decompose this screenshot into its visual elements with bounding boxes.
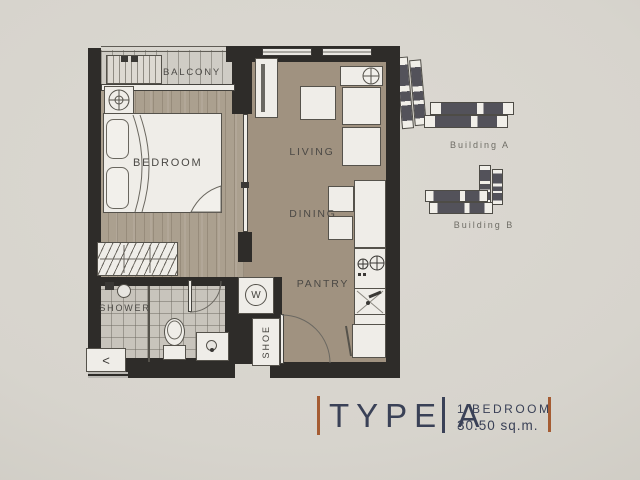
dining-table xyxy=(354,180,386,248)
building-a-wing xyxy=(424,115,508,128)
accent-bar-right xyxy=(548,397,551,432)
sliding-door-handle xyxy=(241,182,249,188)
toilet-bowl xyxy=(164,318,185,346)
building-b-wing xyxy=(492,169,503,205)
wardrobe xyxy=(97,242,178,276)
washer-letter: W xyxy=(251,290,260,301)
sofa-cushion-2 xyxy=(342,127,381,166)
kitchen-stove-counter xyxy=(354,248,386,290)
building-a-wing xyxy=(430,102,514,115)
toilet-tank xyxy=(163,345,186,360)
unit-area: 30.50 sq.m. xyxy=(457,418,552,433)
bedroom-sliding-door xyxy=(243,114,248,232)
brochure-photo: { "floorplan": { "labels": { "balcony": … xyxy=(0,0,640,480)
coffee-table xyxy=(300,86,336,120)
wall-right xyxy=(386,46,400,378)
unit-specs: 1 BEDROOM 30.50 sq.m. xyxy=(457,402,552,433)
living-window-right xyxy=(322,48,372,56)
unit-bedroom-count: 1 BEDROOM xyxy=(457,402,552,416)
shoe-cabinet: SHOE xyxy=(252,318,280,366)
dining-label: DINING xyxy=(283,208,343,220)
living-label: LIVING xyxy=(282,146,342,158)
building-b-wing xyxy=(429,202,493,214)
balcony-railing xyxy=(101,46,233,52)
shower-label: SHOWER xyxy=(95,303,155,313)
divider-bar xyxy=(442,397,445,433)
entrance-arrow: < xyxy=(102,353,110,368)
wall-bottom-right xyxy=(270,362,386,378)
sofa-side-shelf xyxy=(340,66,383,86)
shower-head xyxy=(117,284,131,298)
wall-partition-top xyxy=(232,48,252,114)
bathroom-door-leaf xyxy=(188,280,192,312)
refrigerator xyxy=(352,324,386,358)
wall-top xyxy=(226,46,400,62)
entry-door-leaf xyxy=(280,314,284,364)
building-b-label: Building B xyxy=(444,220,524,230)
shower-valve xyxy=(105,282,114,290)
wall-left xyxy=(88,48,101,378)
entrance-marker: < xyxy=(86,348,126,372)
pantry-label: PANTRY xyxy=(293,278,353,290)
washing-machine-drum: W xyxy=(245,284,267,306)
kitchen-sink-counter xyxy=(354,288,386,316)
tv-cabinet xyxy=(255,58,278,118)
sofa-cushion-1 xyxy=(342,87,381,125)
building-a-label: Building A xyxy=(440,140,520,150)
accent-bar-left xyxy=(317,396,320,435)
building-b-wing xyxy=(425,190,488,202)
living-window-left xyxy=(262,48,312,56)
nightstand xyxy=(104,86,134,114)
balcony-bench xyxy=(106,55,162,84)
balcony-label: BALCONY xyxy=(162,67,222,78)
wall-partition-mid xyxy=(238,232,252,262)
shower-divider xyxy=(148,286,150,362)
vanity-basin xyxy=(206,340,217,351)
bedroom-label: BEDROOM xyxy=(133,157,193,169)
tv xyxy=(261,64,265,112)
shoe-cabinet-label: SHOE xyxy=(261,325,271,359)
